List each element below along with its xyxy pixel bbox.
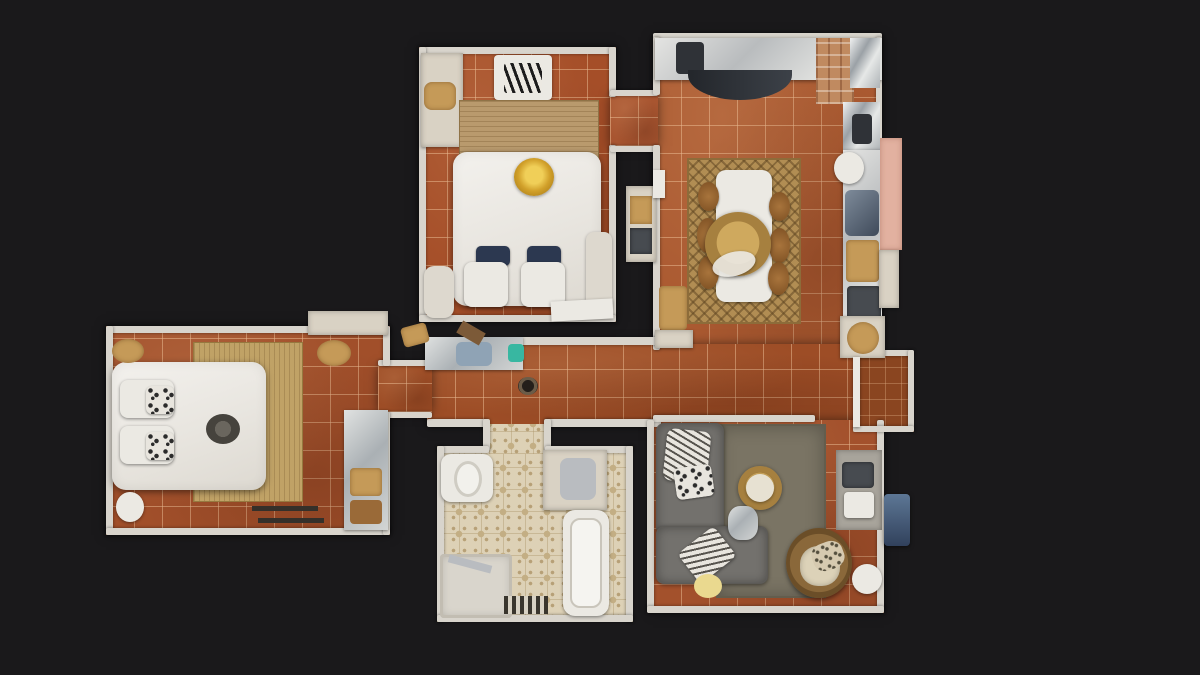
hat-on-bed: [206, 414, 240, 444]
wardrobe-basket: [424, 82, 456, 110]
ottoman-bedroom2: [424, 266, 454, 318]
kettle: [845, 190, 879, 236]
stool-bedroom1: [116, 492, 144, 522]
exterior-wall-lower: [879, 250, 899, 308]
console-cushion-blue: [456, 342, 492, 366]
white-vase: [834, 152, 864, 184]
bath-mat: [504, 596, 548, 614]
wall-ottoman: [852, 564, 882, 594]
kitchen-appliance-top: [850, 38, 880, 88]
shelf-item-upper: [350, 468, 382, 496]
entry-shelf: [308, 311, 388, 335]
threshold-bedroom2: [551, 298, 614, 321]
basket-corner: [112, 339, 144, 363]
desk-item-light: [844, 492, 874, 518]
wall-hall-bottom-left: [427, 419, 487, 427]
dining-chair-r2: [769, 228, 790, 263]
desk-item-dark: [842, 462, 874, 488]
dining-chair-r1: [769, 192, 790, 221]
doorway-bedroom2-kitchen[interactable]: [610, 95, 658, 146]
wall-bathroom-top-left: [437, 446, 489, 453]
wall-living-bottom: [647, 606, 884, 613]
throw-blanket: [694, 574, 722, 598]
bathtub-inner: [570, 518, 602, 608]
wall-balcony-right: [908, 350, 914, 432]
balcony-door-frame: [853, 357, 860, 427]
b1-pillow-print-1: [146, 386, 174, 414]
bench-rail-1: [252, 506, 318, 511]
vanity-basin: [560, 458, 596, 500]
bench-rail-2: [258, 518, 324, 523]
hall-round-table: [847, 322, 879, 354]
dining-side-item: [653, 170, 665, 198]
pink-exterior-wall: [880, 138, 902, 250]
wall-living-top: [653, 415, 815, 422]
b1-pillow-print-2: [146, 432, 174, 460]
ottoman-bedroom1: [317, 340, 351, 366]
wall-doorway2-top: [610, 90, 658, 96]
wall-bathroom-right: [626, 446, 633, 622]
wood-tray: [846, 240, 879, 282]
kitchen-backsplash: [816, 38, 854, 104]
shelf-item-lower: [350, 500, 382, 524]
zebra-bench-seat: [504, 63, 542, 93]
wall-hall-top: [519, 337, 661, 345]
cabinet-dining-bl: [659, 286, 687, 330]
gold-round-pillow: [514, 158, 554, 196]
niche-item-dark: [630, 228, 652, 254]
dining-chair-r3: [768, 262, 789, 295]
wall-doorway2-bottom: [610, 146, 658, 152]
passage-bedroom1-hallway[interactable]: [378, 366, 432, 412]
cabinet-dining-bl2: [655, 330, 693, 348]
toilet-seat: [454, 461, 482, 497]
niche-item-tan: [630, 196, 652, 224]
floor-drain: [518, 377, 538, 395]
sink-basin: [852, 114, 872, 144]
coffee-table-top: [746, 474, 774, 502]
console-item-teal: [508, 344, 524, 362]
window-box: [884, 494, 910, 546]
doorway-bathroom[interactable]: [489, 424, 545, 454]
sofa-cushion-dark: [673, 464, 715, 501]
bed2-cushion-1: [464, 262, 508, 307]
wall-living-left: [647, 420, 654, 613]
floorplan-canvas[interactable]: [0, 0, 1200, 675]
wall-hall-bottom-right: [545, 419, 661, 427]
dining-chair-l1: [698, 182, 719, 211]
white-plant: [728, 506, 758, 540]
wall-balcony-bottom: [853, 426, 914, 432]
